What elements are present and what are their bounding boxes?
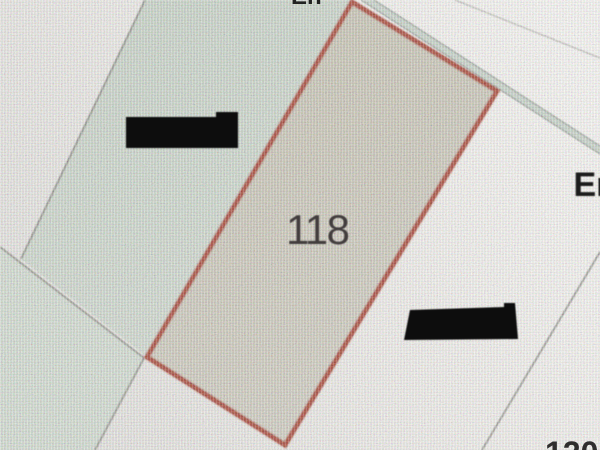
svg-text:En: En [291, 0, 322, 10]
svg-text:En: En [574, 166, 600, 204]
svg-text:118: 118 [286, 206, 349, 253]
svg-text:120: 120 [545, 435, 598, 450]
